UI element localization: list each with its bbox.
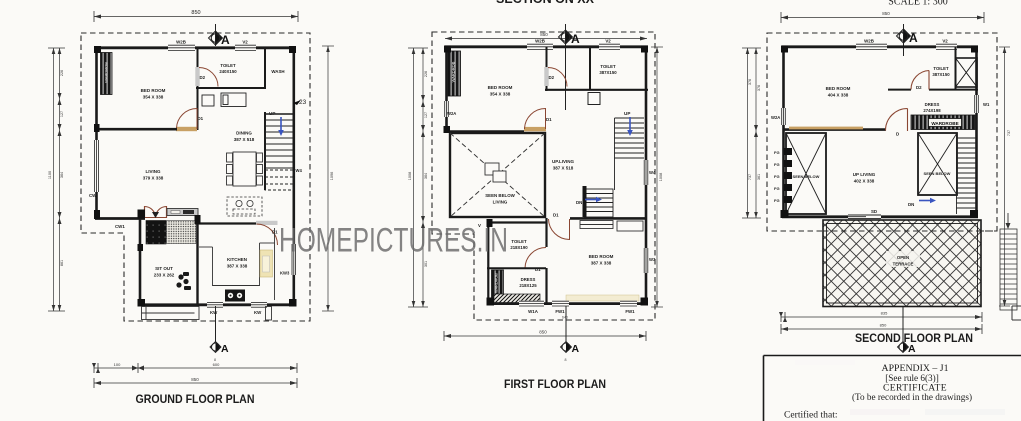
svg-text:1008: 1008 bbox=[408, 172, 412, 180]
svg-text:DN: DN bbox=[908, 202, 914, 207]
svg-text:WASH: WASH bbox=[271, 69, 284, 74]
svg-text:W2A: W2A bbox=[447, 111, 456, 116]
svg-text:361: 361 bbox=[757, 174, 761, 180]
svg-text:A: A bbox=[221, 33, 230, 47]
svg-text:127: 127 bbox=[424, 112, 428, 118]
svg-text:W2B: W2B bbox=[176, 40, 186, 45]
svg-text:GROUND FLOOR PLAN: GROUND FLOOR PLAN bbox=[136, 393, 255, 406]
svg-text:DN: DN bbox=[576, 200, 582, 205]
svg-text:SEEN BELOW: SEEN BELOW bbox=[924, 171, 951, 176]
svg-text:W1: W1 bbox=[983, 102, 990, 107]
svg-text:KITCHEN: KITCHEN bbox=[227, 257, 247, 262]
svg-text:D1: D1 bbox=[198, 116, 204, 121]
svg-text:354 X 338: 354 X 338 bbox=[490, 92, 511, 97]
svg-text:TOILET: TOILET bbox=[511, 239, 527, 244]
svg-text:DRESS: DRESS bbox=[521, 277, 536, 282]
svg-text:737: 737 bbox=[748, 174, 752, 180]
svg-text:A: A bbox=[572, 343, 580, 355]
svg-text:SIT OUT: SIT OUT bbox=[155, 266, 173, 271]
svg-text:SEEN BELOW: SEEN BELOW bbox=[485, 193, 515, 198]
svg-text:(To be recorded in the drawing: (To be recorded in the drawings) bbox=[852, 392, 972, 402]
svg-text:W2B: W2B bbox=[864, 39, 874, 44]
svg-text:850: 850 bbox=[539, 330, 547, 335]
svg-text:387 X 518: 387 X 518 bbox=[234, 137, 255, 142]
svg-text:364: 364 bbox=[424, 173, 428, 179]
svg-text:100: 100 bbox=[114, 362, 121, 367]
svg-text:V2: V2 bbox=[605, 39, 611, 44]
svg-text:404 X 338: 404 X 338 bbox=[828, 93, 849, 98]
svg-text:127: 127 bbox=[60, 111, 64, 117]
svg-text:Certified that:: Certified that: bbox=[784, 410, 838, 421]
svg-text:FW1: FW1 bbox=[625, 309, 635, 314]
svg-text:WARDROB: WARDROB bbox=[451, 61, 456, 82]
svg-text:HOMEPICTURES.IN: HOMEPICTURES.IN bbox=[279, 222, 508, 260]
svg-text:W4: W4 bbox=[649, 170, 656, 175]
svg-text:DRESS: DRESS bbox=[925, 102, 940, 107]
svg-text:KW3: KW3 bbox=[280, 271, 290, 276]
svg-text:850: 850 bbox=[191, 377, 199, 382]
svg-text:1100: 1100 bbox=[48, 171, 52, 179]
svg-text:D2: D2 bbox=[549, 75, 555, 80]
svg-text:UP: UP bbox=[269, 111, 275, 116]
svg-text:DINING: DINING bbox=[236, 131, 252, 136]
svg-text:850: 850 bbox=[191, 10, 200, 16]
svg-text:BED ROOM: BED ROOM bbox=[141, 88, 166, 93]
svg-text:387X150: 387X150 bbox=[599, 70, 617, 75]
svg-text:376: 376 bbox=[757, 85, 761, 91]
svg-text:850: 850 bbox=[882, 11, 890, 16]
svg-text:600: 600 bbox=[213, 362, 220, 367]
svg-text:387X150: 387X150 bbox=[932, 72, 950, 77]
svg-text:FG: FG bbox=[774, 174, 780, 179]
svg-text:CW: CW bbox=[89, 193, 97, 198]
svg-text:A: A bbox=[909, 31, 918, 45]
svg-text:LIVING: LIVING bbox=[145, 169, 161, 174]
svg-text:1008: 1008 bbox=[659, 173, 663, 181]
svg-text:W4: W4 bbox=[296, 168, 303, 173]
svg-text:WARDROB: WARDROB bbox=[495, 273, 499, 293]
svg-text:W2B: W2B bbox=[535, 39, 545, 44]
svg-text:301: 301 bbox=[424, 261, 428, 267]
svg-text:835: 835 bbox=[881, 311, 888, 316]
svg-text:A: A bbox=[221, 343, 229, 355]
svg-text:BED ROOM: BED ROOM bbox=[488, 85, 513, 90]
svg-text:WARDROBE: WARDROBE bbox=[931, 121, 958, 126]
svg-text:UP.LIVING: UP.LIVING bbox=[552, 159, 574, 164]
svg-text:OPEN: OPEN bbox=[897, 255, 909, 260]
svg-text:V2: V2 bbox=[242, 40, 248, 45]
svg-text:CW1: CW1 bbox=[115, 224, 125, 229]
svg-text:FG: FG bbox=[774, 186, 780, 191]
svg-text:W1A: W1A bbox=[528, 309, 539, 314]
svg-text:BED ROOM: BED ROOM bbox=[589, 254, 614, 259]
svg-text:SD: SD bbox=[871, 209, 877, 214]
svg-text:WARDROB: WARDROB bbox=[104, 62, 109, 83]
svg-text:FG: FG bbox=[774, 162, 780, 167]
svg-text:387 X 338: 387 X 338 bbox=[591, 261, 612, 266]
svg-text:8: 8 bbox=[565, 358, 567, 362]
svg-text:D2: D2 bbox=[916, 85, 922, 90]
svg-text:387 X 518: 387 X 518 bbox=[553, 166, 574, 171]
svg-text:D2: D2 bbox=[200, 75, 206, 80]
svg-text:SCALE 1: 300: SCALE 1: 300 bbox=[888, 0, 947, 8]
svg-text:226: 226 bbox=[424, 71, 428, 77]
svg-text:379 X 338: 379 X 338 bbox=[143, 176, 164, 181]
svg-text:W2A: W2A bbox=[771, 115, 780, 120]
svg-text:KW: KW bbox=[254, 310, 262, 315]
svg-text:23: 23 bbox=[299, 99, 307, 106]
svg-text:FIRST FLOOR PLAN: FIRST FLOOR PLAN bbox=[504, 377, 606, 391]
svg-text:SECTION ON XX: SECTION ON XX bbox=[496, 0, 595, 6]
svg-text:D1: D1 bbox=[553, 213, 559, 218]
svg-text:FG: FG bbox=[774, 150, 780, 155]
svg-text:226: 226 bbox=[60, 70, 64, 76]
svg-text:SEEN BELOW: SEEN BELOW bbox=[793, 174, 820, 179]
svg-text:376: 376 bbox=[748, 79, 752, 85]
svg-text:387 X 338: 387 X 338 bbox=[227, 264, 248, 269]
svg-text:TOILET: TOILET bbox=[600, 64, 616, 69]
svg-text:233 X 262: 233 X 262 bbox=[154, 273, 175, 278]
svg-text:240X150: 240X150 bbox=[219, 69, 237, 74]
svg-text:[See rule 6(3)]: [See rule 6(3)] bbox=[885, 373, 939, 383]
svg-text:UP LIVING: UP LIVING bbox=[853, 172, 876, 177]
svg-text:FW1: FW1 bbox=[555, 309, 565, 314]
svg-text:364: 364 bbox=[60, 172, 64, 178]
svg-text:354 X 338: 354 X 338 bbox=[143, 95, 164, 100]
svg-text:861: 861 bbox=[60, 260, 64, 266]
svg-text:274X198: 274X198 bbox=[923, 108, 941, 113]
svg-text:850: 850 bbox=[880, 323, 887, 328]
svg-text:640: 640 bbox=[562, 316, 568, 320]
svg-text:402 X 338: 402 X 338 bbox=[854, 179, 875, 184]
svg-text:218X125: 218X125 bbox=[519, 283, 537, 288]
svg-text:A: A bbox=[908, 343, 916, 355]
svg-text:218X190: 218X190 bbox=[510, 245, 528, 250]
svg-text:850: 850 bbox=[540, 32, 548, 37]
svg-text:W3: W3 bbox=[649, 257, 656, 262]
svg-text:V2: V2 bbox=[942, 39, 948, 44]
svg-text:KW: KW bbox=[210, 310, 218, 315]
svg-text:UP: UP bbox=[624, 111, 630, 116]
svg-text:FG: FG bbox=[774, 198, 780, 203]
svg-text:1096: 1096 bbox=[330, 172, 334, 180]
svg-text:D: D bbox=[896, 132, 899, 137]
svg-text:737: 737 bbox=[1007, 130, 1011, 136]
svg-text:TOILET: TOILET bbox=[220, 63, 236, 68]
svg-text:BED ROOM: BED ROOM bbox=[826, 86, 851, 91]
svg-text:LIVING: LIVING bbox=[493, 200, 508, 205]
svg-text:TERRACE: TERRACE bbox=[893, 262, 914, 267]
svg-text:TOILET: TOILET bbox=[933, 66, 949, 71]
svg-text:D1: D1 bbox=[546, 117, 552, 122]
svg-text:A: A bbox=[571, 32, 580, 46]
svg-text:D1: D1 bbox=[272, 230, 278, 235]
